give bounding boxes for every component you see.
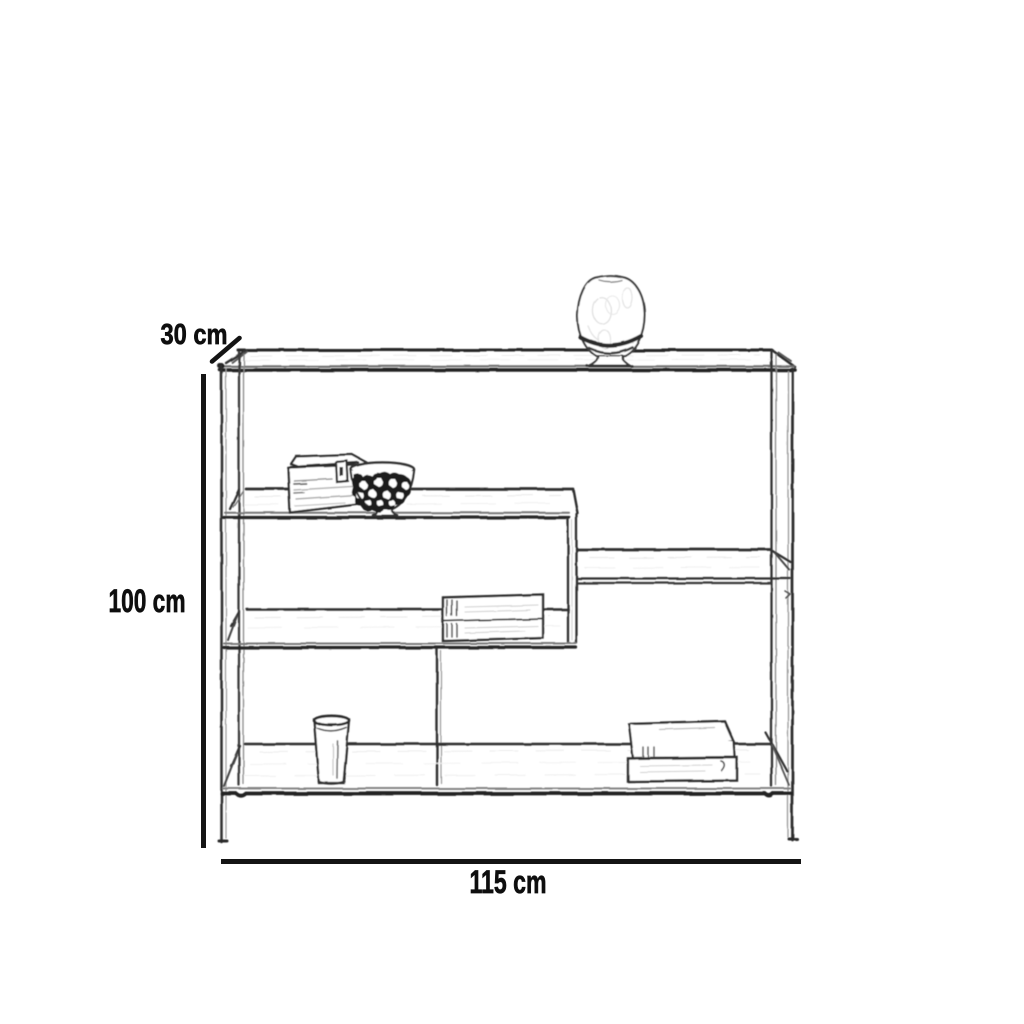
svg-text:115 cm: 115 cm xyxy=(470,864,547,900)
svg-text:100 cm: 100 cm xyxy=(109,583,186,619)
svg-text:30 cm: 30 cm xyxy=(161,319,228,351)
